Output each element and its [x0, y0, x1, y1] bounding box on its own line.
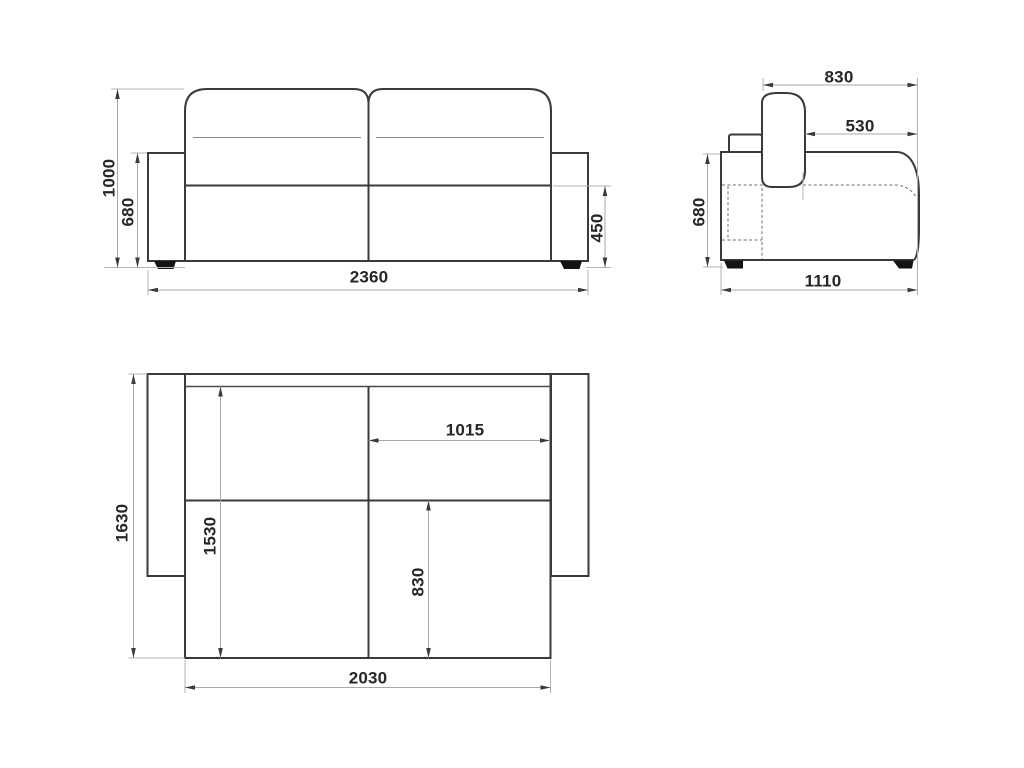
dim-label-top-bed-section-depth: 830: [410, 568, 427, 597]
side-left-foot: [724, 261, 743, 269]
dim-label-top-bed-length: 1530: [202, 517, 219, 556]
sofa-dimensions-drawing: 1000 680 450 2360 830 530 680 1110 1630 …: [0, 0, 1024, 768]
dim-label-front-total-width: 2360: [350, 269, 389, 286]
dim-label-side-seat-depth: 530: [846, 118, 875, 135]
dim-label-front-armrest-height: 680: [120, 198, 137, 227]
dim-label-side-total-depth: 1110: [805, 273, 842, 290]
side-view: [703, 78, 919, 295]
top-view: [129, 374, 589, 693]
front-right-foot: [560, 261, 582, 269]
front-left-armrest: [148, 153, 185, 261]
top-left-armrest: [148, 374, 186, 576]
side-right-foot: [893, 261, 914, 269]
side-back-cushion: [762, 93, 805, 187]
dim-label-side-backrest-depth: 830: [825, 69, 854, 86]
top-right-armrest: [551, 374, 589, 576]
front-view: [104, 89, 611, 295]
dim-label-top-bed-width: 2030: [349, 670, 388, 687]
drawing-linework: [0, 0, 1024, 768]
side-backrest: [729, 135, 762, 153]
dim-label-front-seat-height: 450: [589, 214, 606, 243]
front-right-armrest: [551, 153, 588, 261]
side-body: [721, 152, 919, 260]
dim-label-top-total-depth: 1630: [114, 504, 131, 543]
dim-label-side-armrest-height: 680: [691, 198, 708, 227]
dim-label-front-total-height: 1000: [101, 159, 118, 198]
dim-label-top-bed-half-width: 1015: [446, 422, 485, 439]
